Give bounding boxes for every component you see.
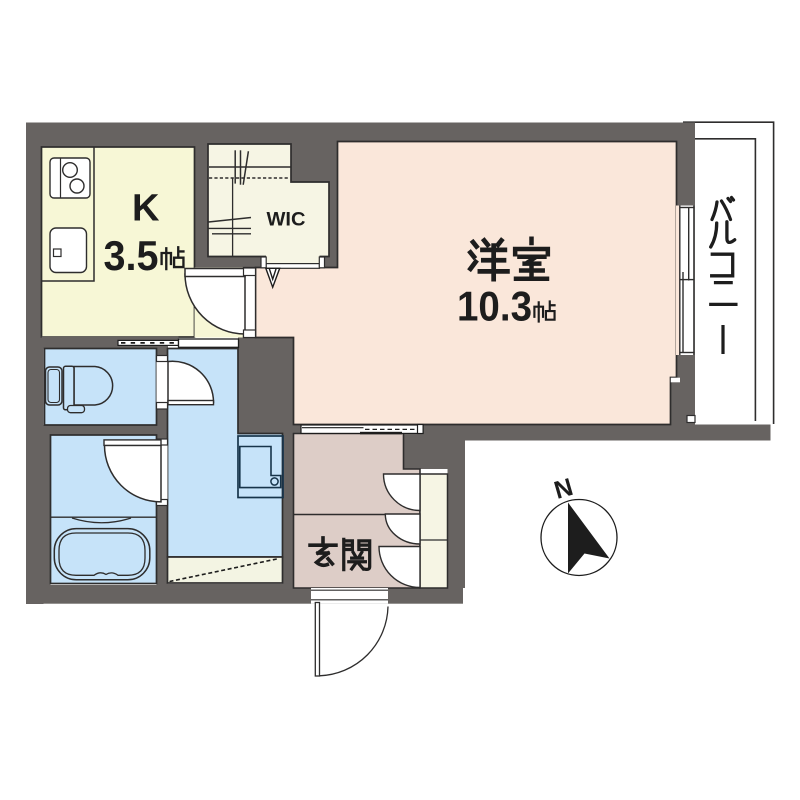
svg-text:WIC: WIC [267,210,306,231]
svg-text:10.3: 10.3 [457,283,532,330]
svg-text:K: K [132,188,160,230]
svg-text:3.5: 3.5 [104,232,159,279]
